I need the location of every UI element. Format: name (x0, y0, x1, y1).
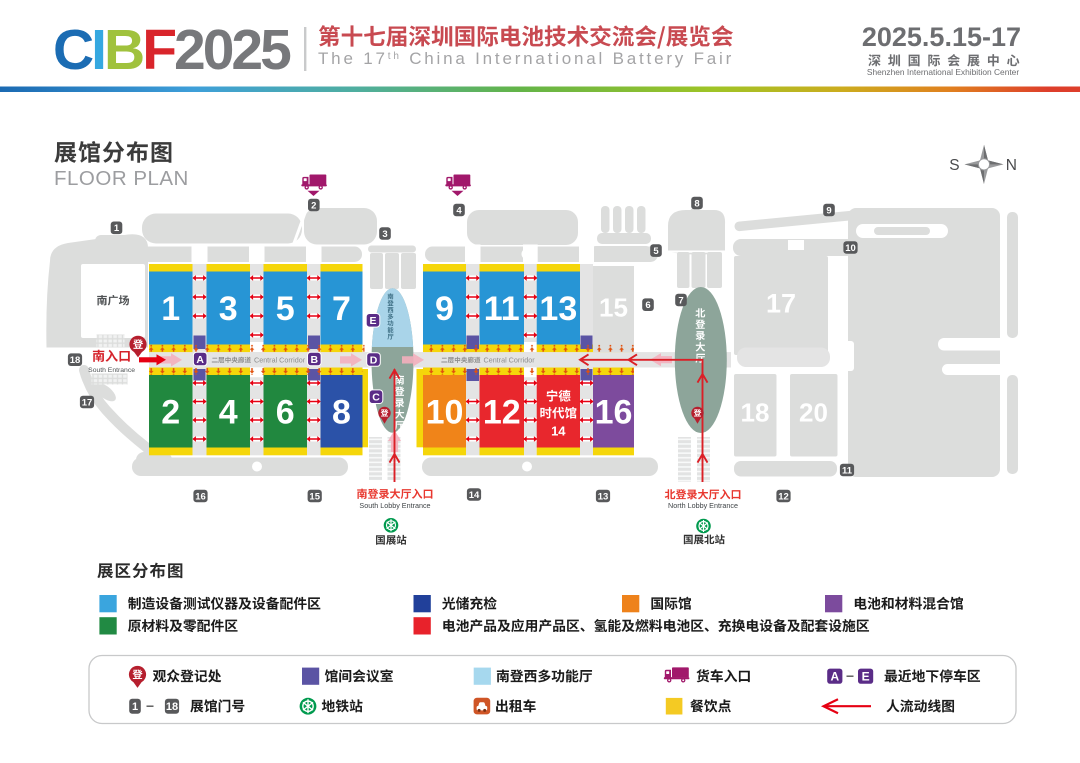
svg-text:17: 17 (766, 289, 796, 319)
svg-text:2: 2 (311, 200, 316, 211)
svg-text:6: 6 (645, 300, 650, 311)
svg-text:10: 10 (845, 243, 856, 254)
svg-text:Central Corridor: Central Corridor (254, 356, 306, 365)
svg-text:8: 8 (694, 198, 699, 209)
svg-text:E: E (862, 670, 870, 684)
svg-text:13: 13 (539, 290, 577, 328)
svg-text:8: 8 (332, 394, 351, 432)
svg-text:1: 1 (161, 290, 180, 328)
svg-text:10: 10 (426, 394, 464, 432)
svg-text:9: 9 (435, 290, 454, 328)
svg-text:E: E (369, 315, 376, 327)
svg-text:11: 11 (484, 290, 520, 328)
svg-text:15: 15 (309, 491, 320, 502)
svg-text:12: 12 (778, 491, 789, 502)
svg-text:S: S (949, 157, 959, 174)
svg-text:3: 3 (382, 229, 387, 240)
svg-text:18: 18 (741, 397, 770, 427)
svg-text:12: 12 (483, 394, 521, 432)
svg-text:1: 1 (114, 223, 120, 234)
svg-text:20: 20 (799, 397, 828, 427)
svg-text:16: 16 (195, 491, 206, 502)
svg-text:2: 2 (161, 394, 180, 432)
svg-text:South Entrance: South Entrance (88, 367, 135, 374)
svg-text:4: 4 (219, 394, 238, 432)
svg-text:3: 3 (219, 290, 238, 328)
svg-text:7: 7 (332, 290, 351, 328)
svg-text:2025.5.15-17: 2025.5.15-17 (862, 22, 1021, 52)
svg-text:5: 5 (653, 246, 659, 257)
svg-text:B: B (311, 354, 319, 366)
svg-text:A: A (830, 670, 839, 684)
svg-text:5: 5 (276, 290, 295, 328)
svg-text:18: 18 (70, 355, 81, 366)
svg-text:Central Corridor: Central Corridor (484, 356, 536, 365)
svg-text:1: 1 (132, 701, 138, 713)
svg-text:15: 15 (599, 292, 628, 322)
svg-text:4: 4 (456, 205, 462, 216)
svg-text:14: 14 (551, 424, 566, 439)
svg-text:FLOOR PLAN: FLOOR PLAN (54, 167, 189, 190)
svg-text:7: 7 (678, 295, 683, 306)
svg-text:Shenzhen International Exhibit: Shenzhen International Exhibition Center (867, 67, 1019, 77)
svg-text:The 17th China International B: The 17th China International Battery Fai… (318, 49, 734, 68)
svg-text:South Lobby Entrance: South Lobby Entrance (359, 501, 430, 510)
svg-text:North Lobby Entrance: North Lobby Entrance (668, 501, 738, 510)
svg-text:9: 9 (826, 205, 831, 216)
svg-text:14: 14 (469, 490, 480, 501)
svg-text:16: 16 (595, 394, 633, 432)
svg-text:C: C (372, 391, 380, 403)
svg-text:6: 6 (276, 394, 295, 432)
svg-text:CIBF2025: CIBF2025 (53, 18, 291, 82)
svg-text:A: A (196, 354, 204, 366)
svg-text:N: N (1006, 157, 1017, 174)
svg-text:11: 11 (842, 465, 853, 476)
svg-text:18: 18 (166, 701, 178, 713)
svg-text:17: 17 (82, 397, 93, 408)
svg-text:D: D (370, 354, 378, 366)
svg-text:13: 13 (598, 491, 609, 502)
